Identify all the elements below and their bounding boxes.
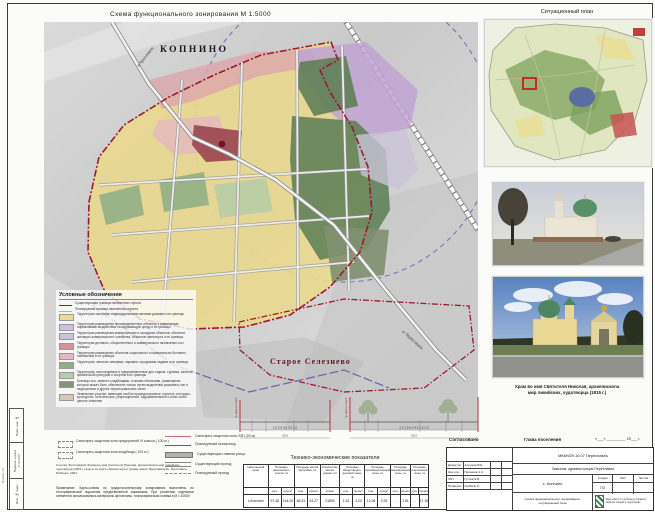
sheets-label: Листов: [634, 475, 653, 482]
legend-zone-item: Территории размещения производственных о…: [59, 323, 193, 331]
szz-lep-swatch: [165, 436, 191, 437]
signer-row: Нач.отд. Пеганков А.А: [447, 469, 512, 476]
profile1-dims: 1,5 3,5 6,0 3,5 1,5: [273, 426, 298, 430]
legend: Условные обозначения Существующая границ…: [56, 290, 196, 407]
signature-table: Директор Алтынов В.Е Нач.отд. Пеганков А…: [447, 448, 513, 510]
existing-boundary-swatch: [59, 305, 72, 306]
legend-line-item: Планируемая граница населенного пункта: [59, 308, 193, 312]
profile1-total: 15,0: [282, 434, 288, 438]
map-title: Схема функционального зонирования М 1:50…: [68, 11, 313, 18]
tec-col: Площадь общественно-деловой зоны, га сущ…: [340, 465, 365, 507]
zone-swatch: [59, 343, 74, 350]
note-text: Примечание. Карты-схемы по градостроител…: [56, 486, 194, 498]
stage-label: Стадия: [593, 475, 613, 482]
org-logo-icon: [595, 495, 604, 508]
approval-date-blank: «___» _________ 20___ г.: [595, 437, 640, 441]
tec-col: Площадь жилой застройки, га сущ.проект 6…: [295, 465, 321, 507]
profile2-dims: 2,0 1,5 6,0 4,5 1,5 2,0: [399, 426, 429, 430]
legend-line-item: Существующая граница населенного пункта: [59, 302, 193, 306]
town-label: КОПНИНО: [160, 45, 229, 55]
situational-plan-title: Ситуационный план: [484, 9, 650, 15]
tec-col: Количество жилых домов, шт проект 21800: [321, 465, 341, 507]
stage-table: Стадия Лист Листов ПЗ: [593, 475, 653, 493]
village-label: Старое Селезнево: [270, 357, 351, 366]
profile2-redline-label: Гр. красных линий: [345, 397, 348, 418]
gas-pipeline-swatch: [165, 445, 191, 446]
legend-zone-item: Территории застройки индивидуальными жил…: [59, 313, 193, 321]
church-photo-2: [492, 276, 644, 378]
zone-swatch: [59, 314, 74, 321]
title-block: Директор Алтынов В.Е Нач.отд. Пеганков А…: [446, 447, 654, 511]
customer-label: Заказчик: администрация Переславля: [513, 464, 653, 475]
signer-row: Проверил Скиба Е.Э.: [447, 483, 512, 490]
tec-col: Площадь производственной зоны, га сущ.пр…: [365, 465, 391, 507]
zone-swatch: [59, 362, 74, 369]
frame-box-vzam-label: Взам. инв. №: [15, 416, 19, 436]
legend-zone-item: Территории, используемые и предназначенн…: [59, 371, 193, 379]
frame-box-inv: Инв. № подл.: [9, 478, 24, 510]
frame-box-inv-label: Инв. № подл.: [15, 484, 19, 504]
church-marker-icon: [219, 141, 225, 147]
tec-table-title: Технико-экономические показатели: [243, 455, 427, 461]
legend-zone-item: Территории, занятые скверами, парками, г…: [59, 361, 193, 369]
zone-swatch: [59, 324, 74, 331]
object-name: с. Копнино: [513, 475, 593, 493]
church-photo-1: [492, 182, 644, 266]
road-profiles: 1,5 3,5 6,0 3,5 1,5 15,0 Гр. красных лин…: [232, 392, 482, 450]
zone-swatch: [59, 333, 74, 340]
planned-boundary-swatch: [59, 311, 72, 312]
doc-title: Схема функционального зонирования, ситуа…: [513, 493, 593, 510]
legend-zone-item: Территории делового, общественного и ком…: [59, 342, 193, 350]
zone-swatch: [59, 394, 74, 401]
photo-caption: Храм во имя Святителя Николая, архиеписк…: [486, 384, 648, 395]
zone-swatch: [59, 372, 74, 379]
szz-cemetery-swatch: [58, 452, 73, 459]
frame-box-podpis: Подпись и дата 17.03.2010: [9, 442, 24, 480]
zone-recreation: [214, 178, 273, 218]
profile1-redline-label: Гр. красных линий: [235, 397, 238, 418]
main-street-swatch: [165, 452, 193, 458]
org-cell: Фонд «Институт проблем устойчивого разви…: [593, 493, 653, 510]
signer-row: Директор Алтынов В.Е: [447, 462, 512, 469]
signer-row: ГАП Гутчев Е.В: [447, 476, 512, 483]
tree-icons: [359, 399, 458, 415]
project-code: МК6Н/29.10.07 Переславль: [513, 448, 653, 464]
legend-zone-item: Земельные участки, имеющие особое природ…: [59, 393, 193, 404]
zone-swatch: [59, 381, 74, 388]
legend-title: Условные обозначения: [59, 292, 193, 300]
reference-note: Ссылка: Фотографии Храма во имя Святител…: [56, 464, 192, 476]
frame-box-date: 17.03.2010: [18, 454, 21, 467]
drawing-sheet: Взам. инв. № Подпись и дата 17.03.2010 И…: [0, 0, 655, 512]
profile2-total: 25,0: [411, 434, 417, 438]
frame-box-podpis-label: Подпись и дата: [13, 450, 17, 472]
frame-box-vzam: Взам. инв. №: [9, 408, 24, 444]
legend-zone-item: Территории размещения коммунальных и скл…: [59, 332, 193, 340]
tec-col: Населенный пункт с.Копнино: [244, 465, 269, 507]
sheet-label: Лист: [613, 475, 633, 482]
lake-shape: [569, 87, 595, 107]
tec-col: Площадь рекреационной зоны, га сущ.проек…: [391, 465, 411, 507]
org-name: Фонд «Институт проблем устойчивого разви…: [606, 499, 653, 505]
legend-zone-item: Территории размещения объектов социально…: [59, 352, 193, 360]
tec-col: Площадь озеленения зоны, га сущ.проект -…: [411, 465, 428, 507]
agreed-label: Согласовано: [449, 437, 479, 442]
format-label: Формат А1: [1, 468, 5, 483]
situational-plan-map: [484, 19, 652, 167]
legend-zone-item: Границы зон, занятых кладбищами, и иными…: [59, 380, 193, 391]
head-of-settlement-label: Глава поселения: [524, 437, 561, 442]
szz-industry-swatch: [58, 441, 73, 448]
tec-col: Площадь населенного пункта, га сущ.проек…: [269, 465, 295, 507]
zone-swatch: [59, 353, 74, 360]
tec-table: Населенный пункт с.Копнино Площадь насел…: [243, 464, 429, 508]
